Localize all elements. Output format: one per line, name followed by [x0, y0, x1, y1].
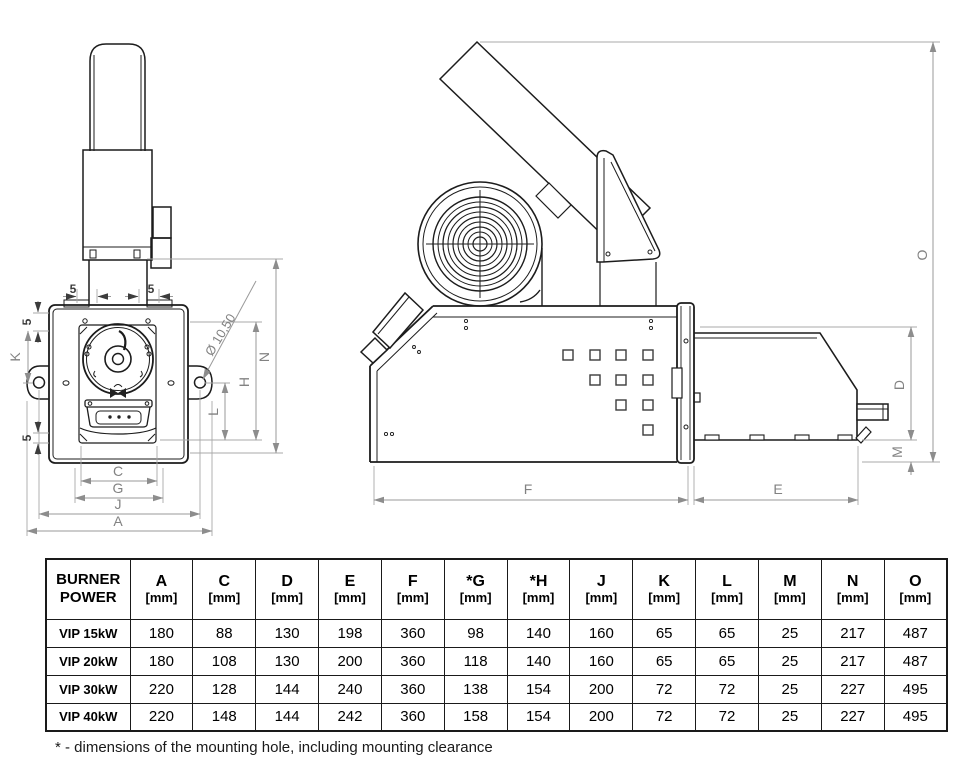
- header-burner-power: BURNER POWER: [46, 559, 130, 619]
- fan-front: [83, 324, 153, 394]
- header-col-n: N[mm]: [821, 559, 884, 619]
- igniter-tube: [361, 293, 423, 363]
- header-col-e: E[mm]: [319, 559, 382, 619]
- fan-side: [418, 182, 542, 306]
- dim-label-l: L: [205, 408, 221, 416]
- header-col-g: *G[mm]: [444, 559, 507, 619]
- dim-label-h: H: [236, 377, 252, 387]
- header-col-k: K[mm]: [633, 559, 696, 619]
- row-label-vip-40kw: VIP 40kW: [46, 703, 130, 731]
- dim-label-5-left-upper: 5: [20, 318, 34, 325]
- dim-label-5-top-right: 5: [148, 282, 155, 296]
- dim-label-e: E: [773, 481, 782, 497]
- header-col-f: F[mm]: [381, 559, 444, 619]
- dim-label-5-top-left: 5: [70, 282, 77, 296]
- table-row: VIP 40kW 220 148 144 242 360 158 154 200…: [46, 703, 947, 731]
- chimney-pipe: [90, 44, 145, 151]
- dim-label-k: K: [7, 352, 23, 362]
- row-label-vip-30kw: VIP 30kW: [46, 675, 130, 703]
- motor-box: [83, 150, 171, 305]
- flange-side: [672, 303, 700, 463]
- header-col-a: A[mm]: [130, 559, 193, 619]
- dim-label-5-left-lower: 5: [20, 434, 34, 441]
- technical-drawing: 5 5 5 5 K N H L Ø 10,50 C G J A: [0, 0, 963, 545]
- header-col-m: M[mm]: [758, 559, 821, 619]
- vent-holes: [563, 350, 653, 435]
- header-col-c: C[mm]: [193, 559, 256, 619]
- clamp-and-grate: [80, 385, 156, 435]
- dim-label-c: C: [113, 463, 123, 479]
- row-label-vip-15kw: VIP 15kW: [46, 619, 130, 647]
- header-col-h: *H[mm]: [507, 559, 570, 619]
- burner-tube: [694, 333, 888, 443]
- dim-label-a: A: [113, 513, 123, 529]
- dim-label-m: M: [889, 446, 905, 458]
- header-col-j: J[mm]: [570, 559, 633, 619]
- support-bracket: [597, 151, 660, 306]
- side-view: [361, 42, 888, 463]
- front-view: [27, 44, 212, 463]
- header-col-o: O[mm]: [884, 559, 947, 619]
- page: 5 5 5 5 K N H L Ø 10,50 C G J A: [0, 0, 963, 774]
- header-col-d: D[mm]: [256, 559, 319, 619]
- dim-label-n: N: [256, 352, 272, 362]
- dimensions-table: BURNER POWER A[mm] C[mm] D[mm] E[mm] F[m…: [45, 558, 948, 732]
- table-row: VIP 20kW 180 108 130 200 360 118 140 160…: [46, 647, 947, 675]
- footnote: * - dimensions of the mounting hole, inc…: [55, 739, 493, 756]
- table-row: VIP 30kW 220 128 144 240 360 138 154 200…: [46, 675, 947, 703]
- table-header-row: BURNER POWER A[mm] C[mm] D[mm] E[mm] F[m…: [46, 559, 947, 619]
- dim-label-o: O: [914, 249, 930, 260]
- dim-label-j: J: [115, 496, 122, 512]
- dim-label-g: G: [113, 480, 124, 496]
- dim-label-d: D: [891, 380, 907, 390]
- side-view-dimensions: F E D M O: [374, 42, 940, 505]
- dim-label-hole-diameter: Ø 10,50: [202, 311, 239, 358]
- table-row: VIP 15kW 180 88 130 198 360 98 140 160 6…: [46, 619, 947, 647]
- dim-label-f: F: [524, 481, 533, 497]
- row-label-vip-20kw: VIP 20kW: [46, 647, 130, 675]
- main-housing: [370, 306, 677, 462]
- header-col-l: L[mm]: [696, 559, 759, 619]
